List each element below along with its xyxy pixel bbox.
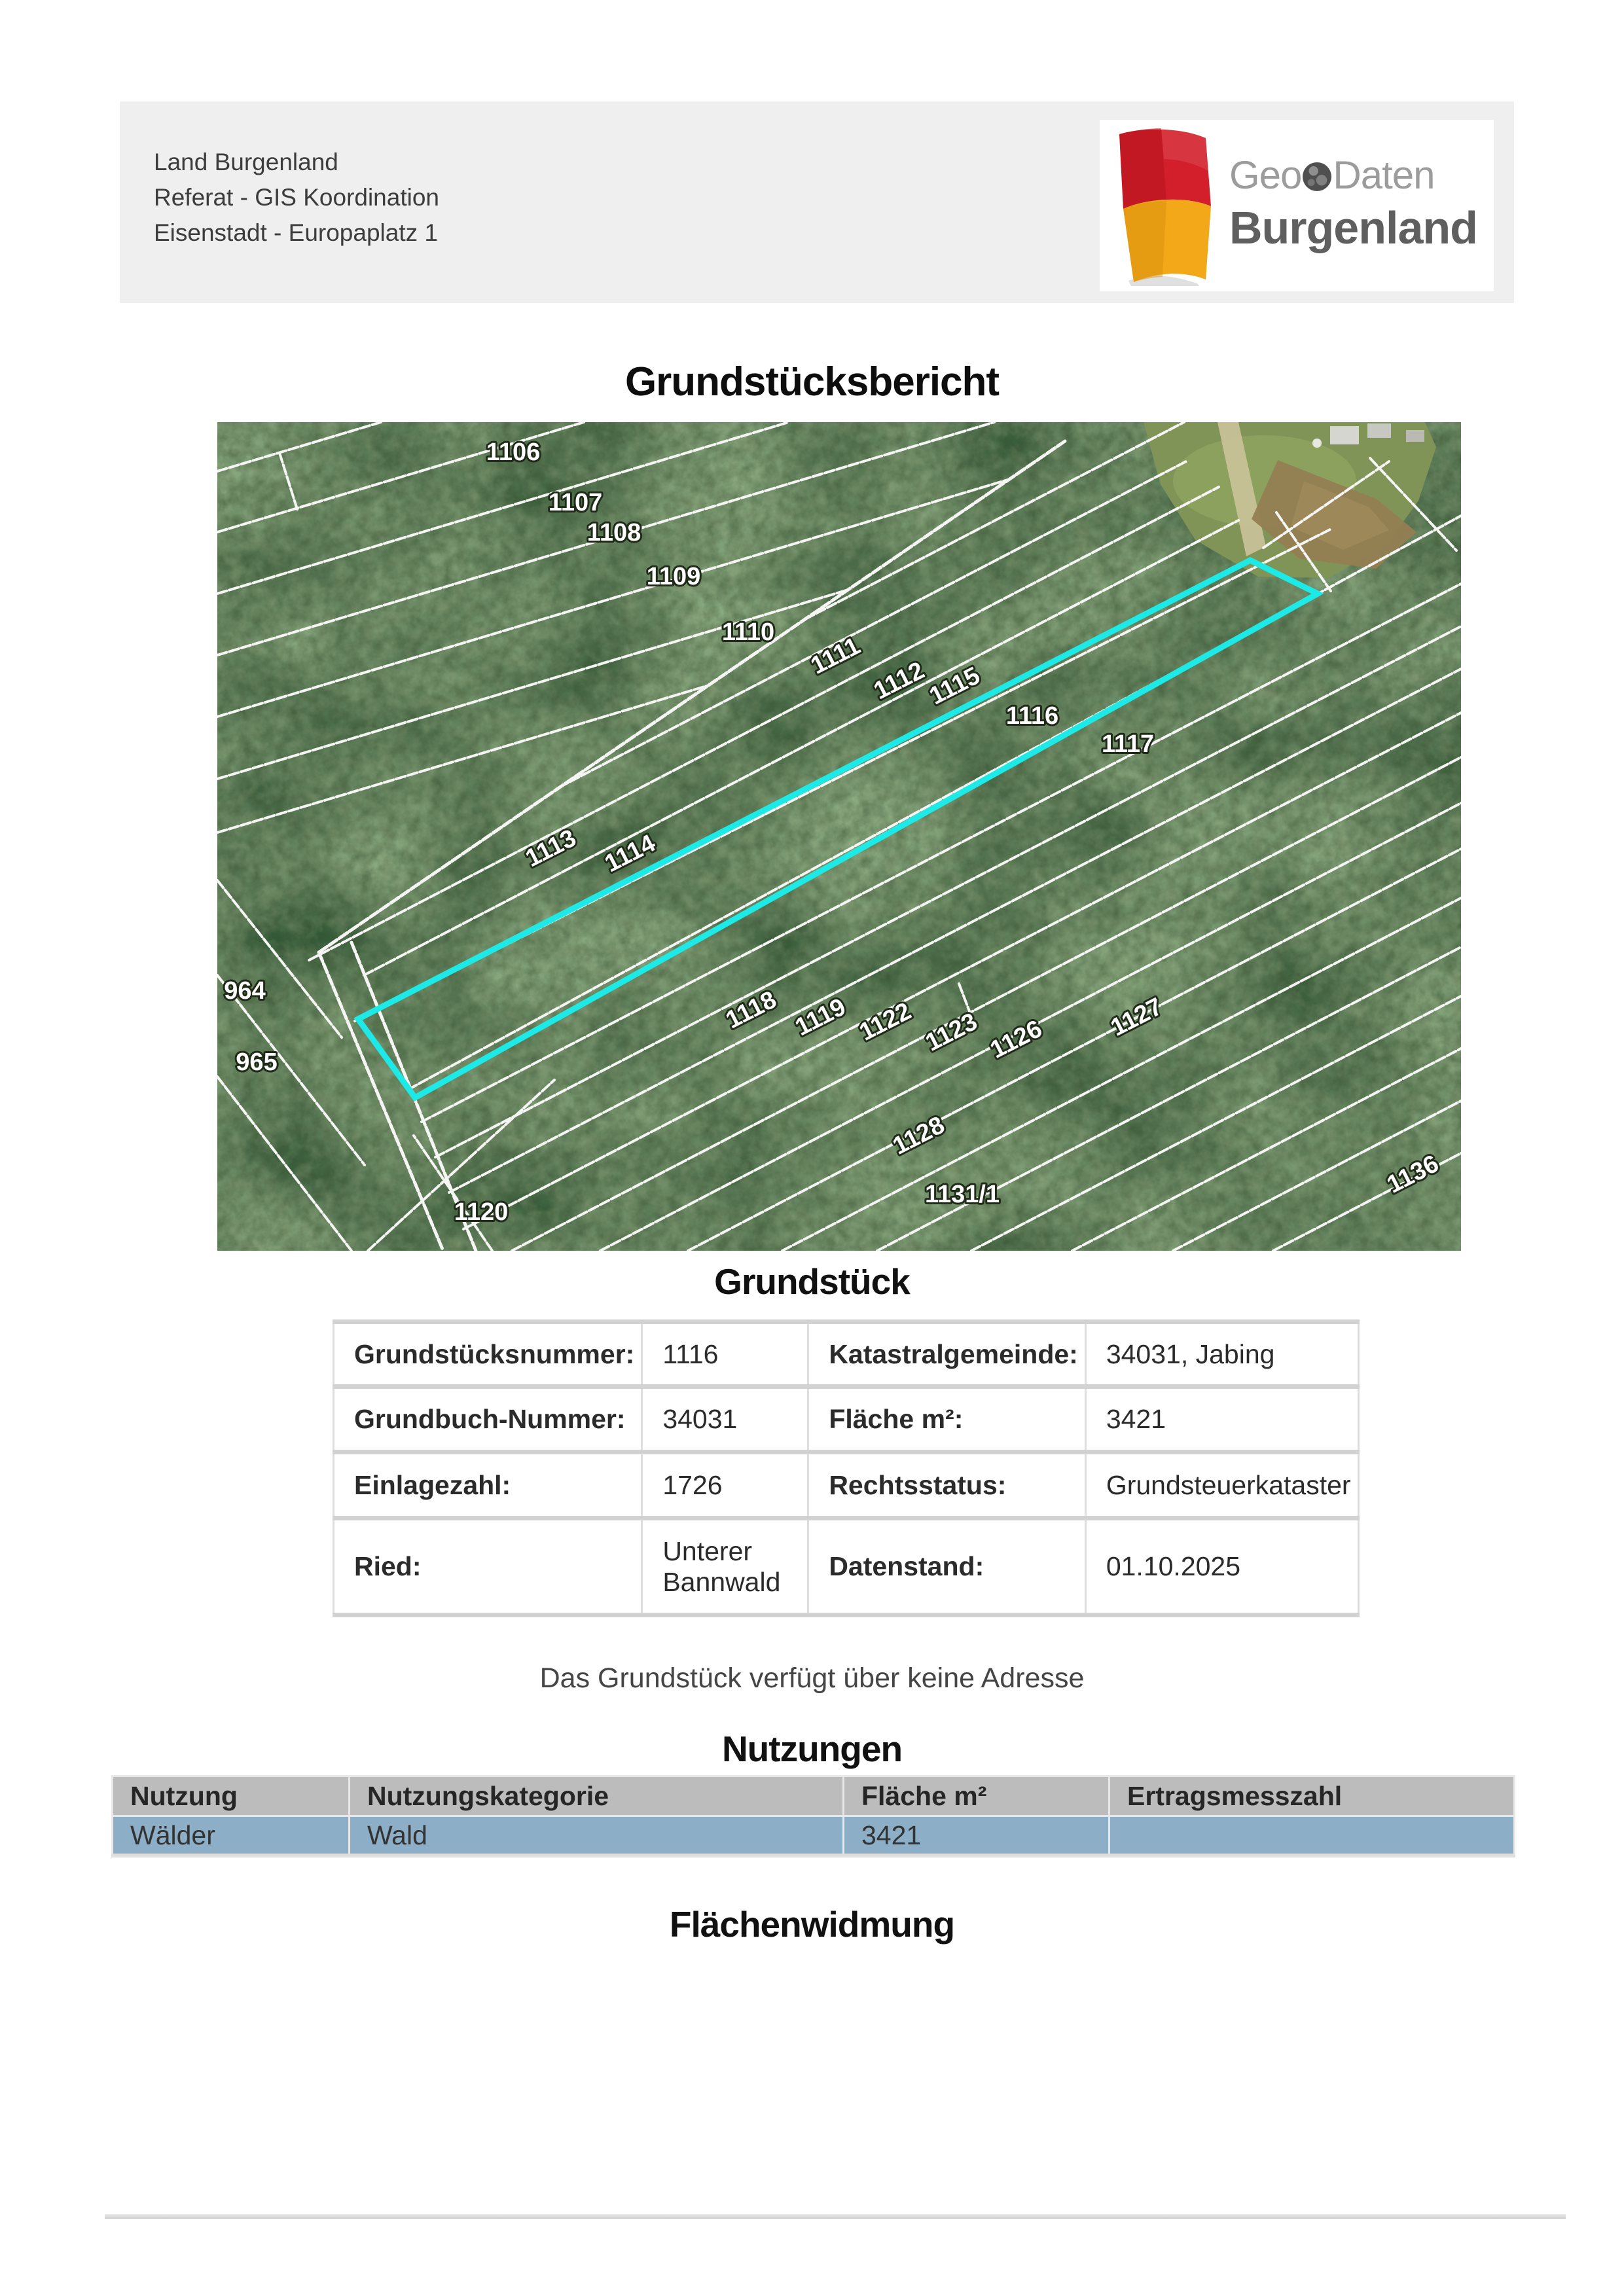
field-value: 3421 [1085, 1387, 1358, 1452]
geodaten-logo: GeoDaten Burgenland [1100, 120, 1494, 291]
table-row: Ried: Unterer Bannwald Datenstand: 01.10… [334, 1518, 1359, 1615]
column-header: Fläche m² [844, 1776, 1110, 1816]
footer-divider [105, 2214, 1566, 2219]
parcel-label: 1108 [587, 519, 641, 547]
cell-nutzungskategorie: Wald [350, 1816, 844, 1856]
globe-icon [1303, 162, 1331, 191]
address-note: Das Grundstück verfügt über keine Adress… [0, 1662, 1624, 1695]
nutzungen-table: Nutzung Nutzungskategorie Fläche m² Ertr… [111, 1775, 1515, 1857]
field-label: Grundstücksnummer: [334, 1322, 642, 1387]
logo-text: GeoDaten Burgenland [1229, 152, 1477, 254]
logo-text-burgenland: Burgenland [1229, 202, 1477, 254]
parcel-label: 1107 [549, 489, 602, 516]
field-value: 1116 [642, 1322, 808, 1387]
table-header-row: Nutzung Nutzungskategorie Fläche m² Ertr… [113, 1776, 1515, 1816]
grundstueck-table: Grundstücksnummer: 1116 Katastralgemeind… [333, 1319, 1360, 1617]
field-value: 34031 [642, 1387, 808, 1452]
grundstuecksbericht-page: Land Burgenland Referat - GIS Koordinati… [0, 0, 1624, 2296]
nutzungen-heading: Nutzungen [0, 1728, 1624, 1770]
building [1367, 423, 1391, 438]
satellite-map-image: 1106110711081109111011111112111511161117… [217, 422, 1461, 1251]
field-value: 01.10.2025 [1085, 1518, 1358, 1615]
table-row: Grundbuch-Nummer: 34031 Fläche m²: 3421 [334, 1387, 1359, 1452]
building [1330, 426, 1359, 444]
table-row: Wälder Wald 3421 [113, 1816, 1515, 1856]
field-label: Fläche m²: [808, 1387, 1086, 1452]
field-value: 1726 [642, 1452, 808, 1518]
cell-flaeche: 3421 [844, 1816, 1110, 1856]
parcel-label: 965 [236, 1049, 277, 1076]
parcel-label: 964 [224, 977, 265, 1005]
org-address-block: Land Burgenland Referat - GIS Koordinati… [154, 145, 439, 251]
cell-ertragsmesszahl [1110, 1816, 1515, 1856]
field-value: 34031, Jabing [1085, 1322, 1358, 1387]
column-header: Nutzung [113, 1776, 350, 1816]
burgenland-flag-icon [1109, 125, 1218, 286]
org-line-3: Eisenstadt - Europaplatz 1 [154, 215, 439, 251]
parcel-label: 1131/1 [925, 1181, 1000, 1208]
field-label: Rechtsstatus: [808, 1452, 1086, 1518]
column-header: Nutzungskategorie [350, 1776, 844, 1816]
parcel-label: 1117 [1102, 730, 1154, 758]
parcel-label: 1116 [1006, 702, 1058, 730]
flaechenwidmung-heading: Flächenwidmung [0, 1903, 1624, 1945]
page-title: Grundstücksbericht [0, 359, 1624, 405]
field-label: Grundbuch-Nummer: [334, 1387, 642, 1452]
field-label: Katastralgemeinde: [808, 1322, 1086, 1387]
parcel-label: 1109 [647, 563, 700, 590]
parcel-label: 1106 [486, 439, 540, 466]
field-value: Unterer Bannwald [642, 1518, 808, 1615]
building [1406, 430, 1424, 442]
grundstueck-heading: Grundstück [0, 1261, 1624, 1302]
field-label: Einlagezahl: [334, 1452, 642, 1518]
field-label: Datenstand: [808, 1518, 1086, 1615]
logo-text-daten: Daten [1333, 153, 1434, 197]
parcel-label: 1120 [454, 1198, 508, 1226]
org-line-2: Referat - GIS Koordination [154, 180, 439, 215]
field-label: Ried: [334, 1518, 642, 1615]
table-row: Grundstücksnummer: 1116 Katastralgemeind… [334, 1322, 1359, 1387]
cell-nutzung: Wälder [113, 1816, 350, 1856]
header-band: Land Burgenland Referat - GIS Koordinati… [120, 101, 1514, 303]
field-value: Grundsteuerkataster [1085, 1452, 1358, 1518]
parcel-label: 1110 [722, 619, 774, 646]
column-header: Ertragsmesszahl [1110, 1776, 1515, 1816]
logo-text-geo: Geo [1229, 153, 1301, 197]
parcel-map: 1106110711081109111011111112111511161117… [217, 422, 1461, 1251]
org-line-1: Land Burgenland [154, 145, 439, 180]
table-row: Einlagezahl: 1726 Rechtsstatus: Grundste… [334, 1452, 1359, 1518]
